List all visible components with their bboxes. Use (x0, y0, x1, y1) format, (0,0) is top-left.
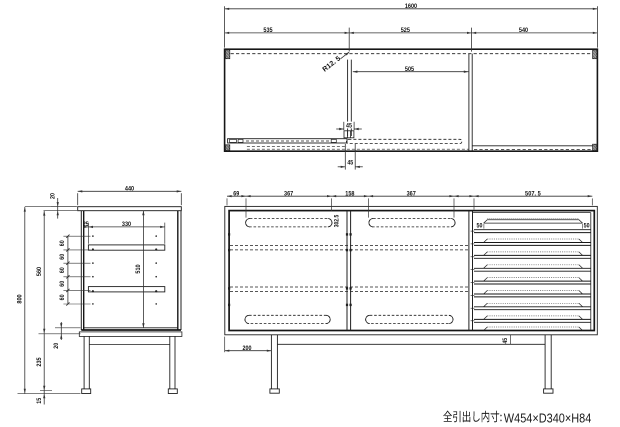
svg-text:158: 158 (345, 191, 354, 198)
svg-text:60: 60 (59, 294, 66, 300)
svg-text:1600: 1600 (405, 3, 418, 10)
svg-text:50: 50 (584, 223, 590, 230)
svg-text:560: 560 (36, 267, 43, 276)
svg-text:69: 69 (233, 191, 239, 198)
svg-text:505: 505 (405, 66, 414, 73)
svg-text:45: 45 (502, 337, 509, 343)
svg-text:15: 15 (36, 397, 43, 403)
svg-text:20: 20 (53, 342, 60, 348)
svg-text:302.5: 302.5 (334, 214, 340, 227)
svg-text:60: 60 (59, 280, 66, 286)
svg-text:W454×D340×H84: W454×D340×H84 (504, 411, 592, 426)
svg-text:540: 540 (519, 27, 528, 34)
svg-text:367: 367 (407, 191, 416, 198)
svg-text:60: 60 (59, 267, 66, 273)
svg-text:45: 45 (347, 160, 353, 167)
svg-text:507. 5: 507. 5 (525, 191, 541, 198)
svg-text:800: 800 (16, 294, 23, 303)
svg-text:50: 50 (477, 223, 483, 230)
svg-text:330: 330 (122, 221, 131, 228)
svg-text:60: 60 (59, 240, 66, 246)
svg-text:25: 25 (83, 221, 89, 228)
svg-text:60: 60 (59, 253, 66, 259)
svg-text:45: 45 (346, 123, 352, 130)
svg-text:535: 535 (263, 27, 272, 34)
svg-text:200: 200 (243, 345, 252, 352)
svg-text:525: 525 (401, 27, 410, 34)
svg-text:235: 235 (36, 357, 43, 366)
svg-text:367: 367 (284, 191, 293, 198)
svg-text:510: 510 (135, 264, 142, 273)
svg-text:20: 20 (50, 193, 57, 199)
svg-text:440: 440 (125, 186, 134, 193)
